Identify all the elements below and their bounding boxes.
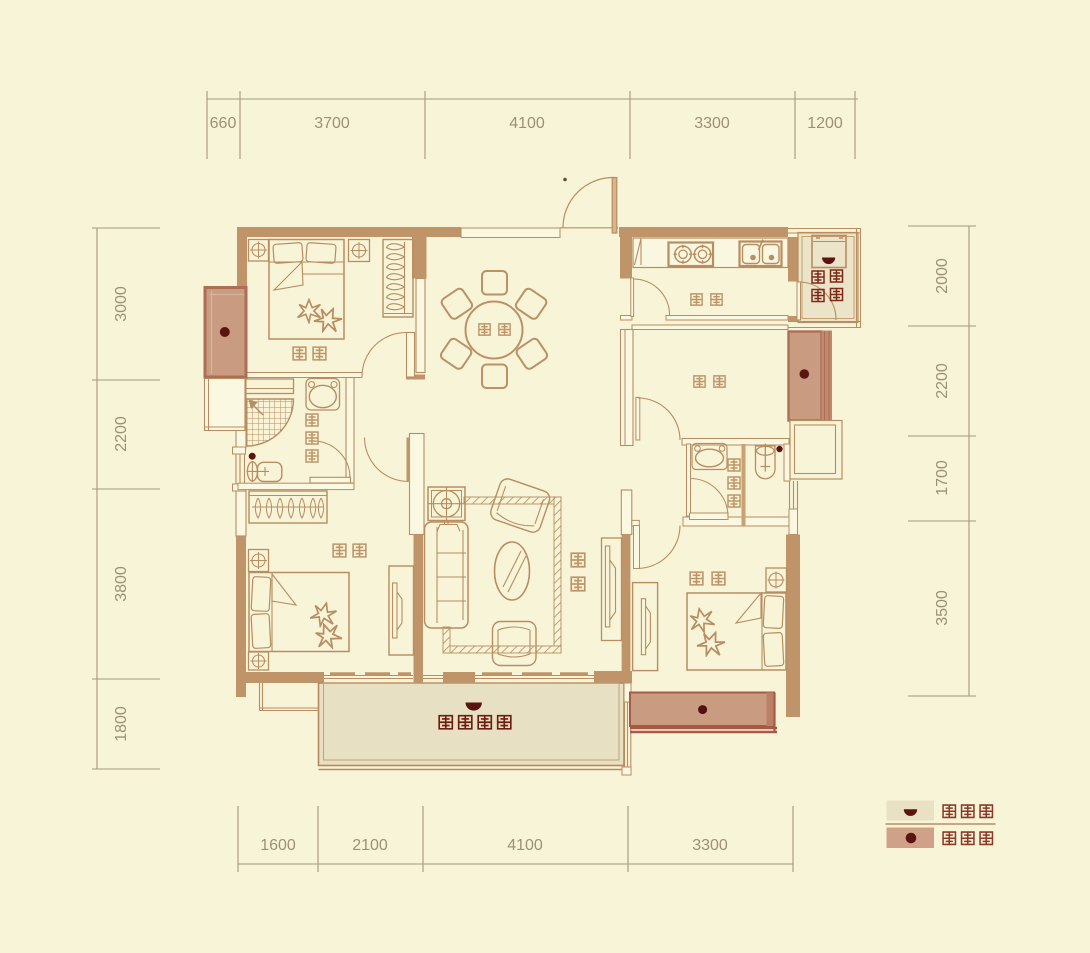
svg-text:3300: 3300: [694, 115, 730, 132]
svg-text:4100: 4100: [509, 115, 545, 132]
svg-text:3700: 3700: [314, 115, 350, 132]
svg-text:2200: 2200: [113, 416, 130, 452]
svg-text:2000: 2000: [934, 258, 951, 294]
svg-text:1700: 1700: [934, 460, 951, 496]
svg-text:2200: 2200: [934, 363, 951, 399]
svg-text:3800: 3800: [113, 566, 130, 602]
svg-text:3000: 3000: [113, 286, 130, 322]
svg-text:4100: 4100: [507, 837, 543, 854]
svg-text:1600: 1600: [260, 837, 296, 854]
svg-text:3500: 3500: [934, 590, 951, 626]
svg-text:3300: 3300: [692, 837, 728, 854]
svg-text:2100: 2100: [352, 837, 388, 854]
svg-text:660: 660: [210, 115, 237, 132]
svg-text:1200: 1200: [807, 115, 843, 132]
svg-text:1800: 1800: [113, 706, 130, 742]
